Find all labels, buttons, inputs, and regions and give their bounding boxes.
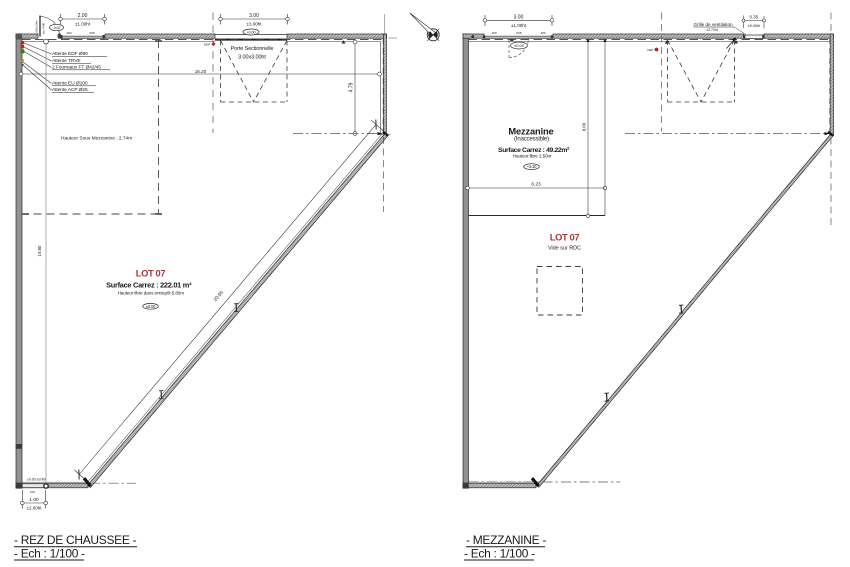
svg-text:1.00: 1.00 xyxy=(29,497,39,503)
svg-text:0.35: 0.35 xyxy=(750,15,759,20)
svg-text:19.80: 19.80 xyxy=(37,245,42,257)
svg-text:(Inaccessible): (Inaccessible) xyxy=(514,136,549,142)
svg-text:Hauteur libre dans entrepôt 5.: Hauteur libre dans entrepôt 5.80m xyxy=(118,290,185,295)
svg-text:100: 100 xyxy=(30,490,35,494)
svg-text:- Ech : 1/100 -: - Ech : 1/100 - xyxy=(464,547,535,561)
svg-text:3.00: 3.00 xyxy=(514,15,524,21)
svg-text:±2.00ht: ±2.00ht xyxy=(27,506,43,511)
svg-text:Grille de ventilation: Grille de ventilation xyxy=(694,22,734,27)
svg-text:±0.00 sol fini: ±0.00 sol fini xyxy=(27,478,46,482)
svg-text:+3.10: +3.10 xyxy=(527,164,537,169)
svg-text:- MEZZANINE -: - MEZZANINE - xyxy=(466,533,546,547)
svg-text:Hauteur libre 2.50m: Hauteur libre 2.50m xyxy=(513,154,552,159)
svg-text:Porte Sectionnelle: Porte Sectionnelle xyxy=(231,46,274,52)
svg-text:LOT 07: LOT 07 xyxy=(550,232,580,243)
svg-text:Mezzanine: Mezzanine xyxy=(508,127,553,137)
svg-text:±1.00ht: ±1.00ht xyxy=(511,23,527,28)
svg-text:098: 098 xyxy=(89,31,94,35)
svg-text:DEP: DEP xyxy=(647,48,653,52)
svg-text:±1.00ht: ±1.00ht xyxy=(75,22,91,27)
svg-text:acc. PMR: acc. PMR xyxy=(41,23,45,34)
svg-text:±3.00ht: ±3.00ht xyxy=(247,22,263,27)
svg-text:180: 180 xyxy=(540,31,545,35)
svg-text:±2.70ht: ±2.70ht xyxy=(706,28,717,32)
svg-text:3.00x3.00ht: 3.00x3.00ht xyxy=(238,55,266,61)
svg-text:4.79: 4.79 xyxy=(349,82,355,92)
svg-text:6.23: 6.23 xyxy=(531,181,541,187)
svg-text:- Ech : 1/100 -: - Ech : 1/100 - xyxy=(14,547,85,561)
svg-text:-0.02: -0.02 xyxy=(53,26,61,30)
svg-text:Vide sur RDC: Vide sur RDC xyxy=(548,246,581,252)
svg-text:±0.00: ±0.00 xyxy=(146,304,156,309)
svg-text:098: 098 xyxy=(516,31,521,35)
svg-text:2.00: 2.00 xyxy=(78,13,88,19)
svg-text:180: 180 xyxy=(491,31,496,35)
svg-text:+0.00: +0.00 xyxy=(247,30,257,35)
svg-text:180: 180 xyxy=(66,31,71,35)
svg-text:0.93x2.04ht: 0.93x2.04ht xyxy=(34,20,38,34)
svg-text:8.06: 8.06 xyxy=(582,122,587,131)
svg-text:3.00: 3.00 xyxy=(249,13,259,19)
svg-text:±0.00: ±0.00 xyxy=(514,43,525,48)
svg-text:±0.40ht: ±0.40ht xyxy=(748,24,762,28)
svg-text:DEP: DEP xyxy=(204,43,210,47)
svg-text:16.20: 16.20 xyxy=(195,69,207,74)
svg-text:Surface Carrez : 222.01 m²: Surface Carrez : 222.01 m² xyxy=(106,281,192,290)
svg-text:- REZ DE CHAUSSEE -: - REZ DE CHAUSSEE - xyxy=(14,533,137,547)
svg-text:Hauteur Sous Mezzanine : 2.74m: Hauteur Sous Mezzanine : 2.74m xyxy=(61,136,132,142)
svg-text:LOT 07: LOT 07 xyxy=(136,268,166,279)
